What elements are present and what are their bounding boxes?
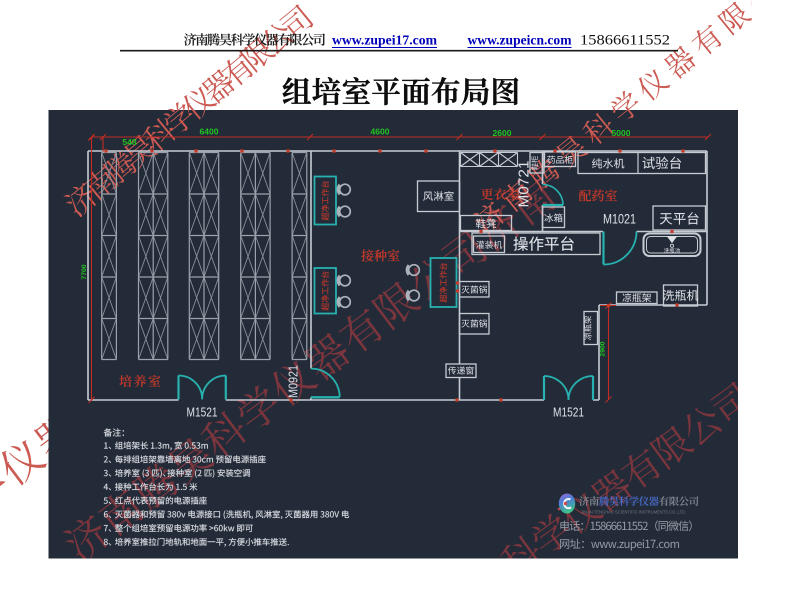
svg-text:M0721: M0721	[517, 161, 533, 208]
svg-text:M0921: M0921	[287, 365, 301, 398]
svg-text:4600: 4600	[371, 127, 390, 137]
svg-text:2900: 2900	[600, 341, 607, 356]
svg-text:15866611552: 15866611552	[580, 33, 670, 49]
svg-text:2600: 2600	[493, 128, 512, 138]
svg-text:www.zupeicn.com: www.zupeicn.com	[468, 34, 572, 49]
svg-text:6400: 6400	[200, 127, 219, 137]
svg-text:7700: 7700	[81, 264, 88, 279]
svg-text:5000: 5000	[612, 128, 631, 138]
svg-text:548: 548	[122, 137, 136, 147]
svg-text:www.zupei17.com: www.zupei17.com	[332, 34, 437, 49]
svg-text:M1521: M1521	[553, 405, 584, 420]
svg-text:M1521: M1521	[187, 405, 218, 420]
svg-text:M1021: M1021	[603, 212, 636, 227]
svg-text:JINAN TENGHAO SCIENTIFIC INSTR: JINAN TENGHAO SCIENTIFIC INSTRUMENTS CO.…	[581, 510, 686, 516]
